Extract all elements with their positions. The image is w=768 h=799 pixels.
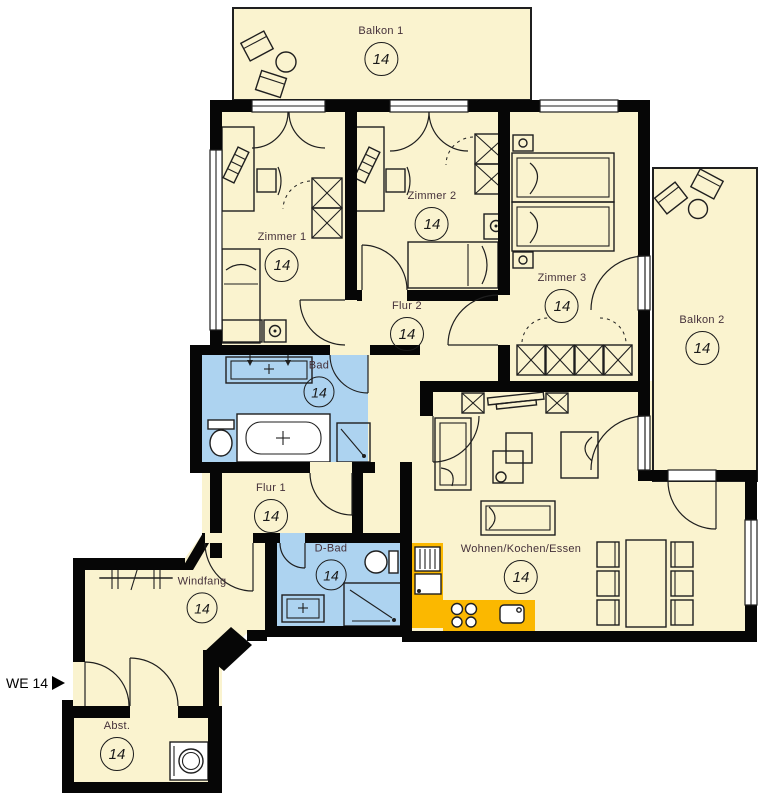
room-name: Zimmer 3 [538,272,587,284]
room-label-balkon-2: Balkon 2 14 [679,314,724,365]
room-number-badge: 14 [364,42,398,76]
room-label-balkon-1: Balkon 1 14 [358,25,403,76]
room-number-badge: 14 [685,331,719,365]
room-number-badge: 14 [304,376,335,407]
room-label-zimmer-2: Zimmer 2 14 [408,190,457,241]
toilet-icon [208,420,234,456]
washing-machine-icon [170,742,208,780]
fridge-icon [415,547,440,571]
room-name: Flur 2 [392,300,422,312]
unit-label-text: WE 14 [6,675,48,691]
oven-icon [415,574,441,594]
room-name: Abst. [104,720,131,732]
room-label-bad: Bad 14 [304,359,335,407]
room-number-badge: 14 [265,248,299,282]
room-label-d-bad: D-Bad 14 [315,542,348,590]
room-name: Zimmer 1 [258,231,307,243]
room-label-wohnen-kochen-essen: Wohnen/Kochen/Essen 14 [461,543,581,594]
room-name: Balkon 2 [679,314,724,326]
room-label-zimmer-3: Zimmer 3 14 [538,272,587,323]
room-name: D-Bad [315,542,348,554]
room-name: Balkon 1 [358,25,403,37]
bathtub-icon [237,414,330,462]
room-number-badge: 14 [415,207,449,241]
room-label-zimmer-1: Zimmer 1 14 [258,231,307,282]
room-name: Windfang [178,575,227,587]
room-label-windfang: Windfang 14 [178,575,227,623]
floor-plan-drawing [0,0,768,799]
floor-plan-page: Balkon 1 14 Zimmer 1 14 Zimmer 2 14 Zimm… [0,0,768,799]
room-name: Wohnen/Kochen/Essen [461,543,581,555]
room-label-flur-2: Flur 2 14 [390,300,424,351]
room-name: Zimmer 2 [408,190,457,202]
entrance-arrow-icon [52,676,65,690]
sink-icon [500,605,524,623]
room-number-badge: 14 [504,560,538,594]
room-number-badge: 14 [187,592,218,623]
room-number-badge: 14 [100,737,134,771]
room-name: Flur 1 [256,482,286,494]
room-name: Bad [309,359,329,371]
unit-label: WE 14 [6,675,65,691]
room-label-flur-1: Flur 1 14 [254,482,288,533]
room-number-badge: 14 [390,317,424,351]
toilet-icon [365,551,398,573]
room-number-badge: 14 [316,559,347,590]
room-number-badge: 14 [254,499,288,533]
room-number-badge: 14 [545,289,579,323]
room-label-abstellraum: Abst. 14 [100,720,134,771]
